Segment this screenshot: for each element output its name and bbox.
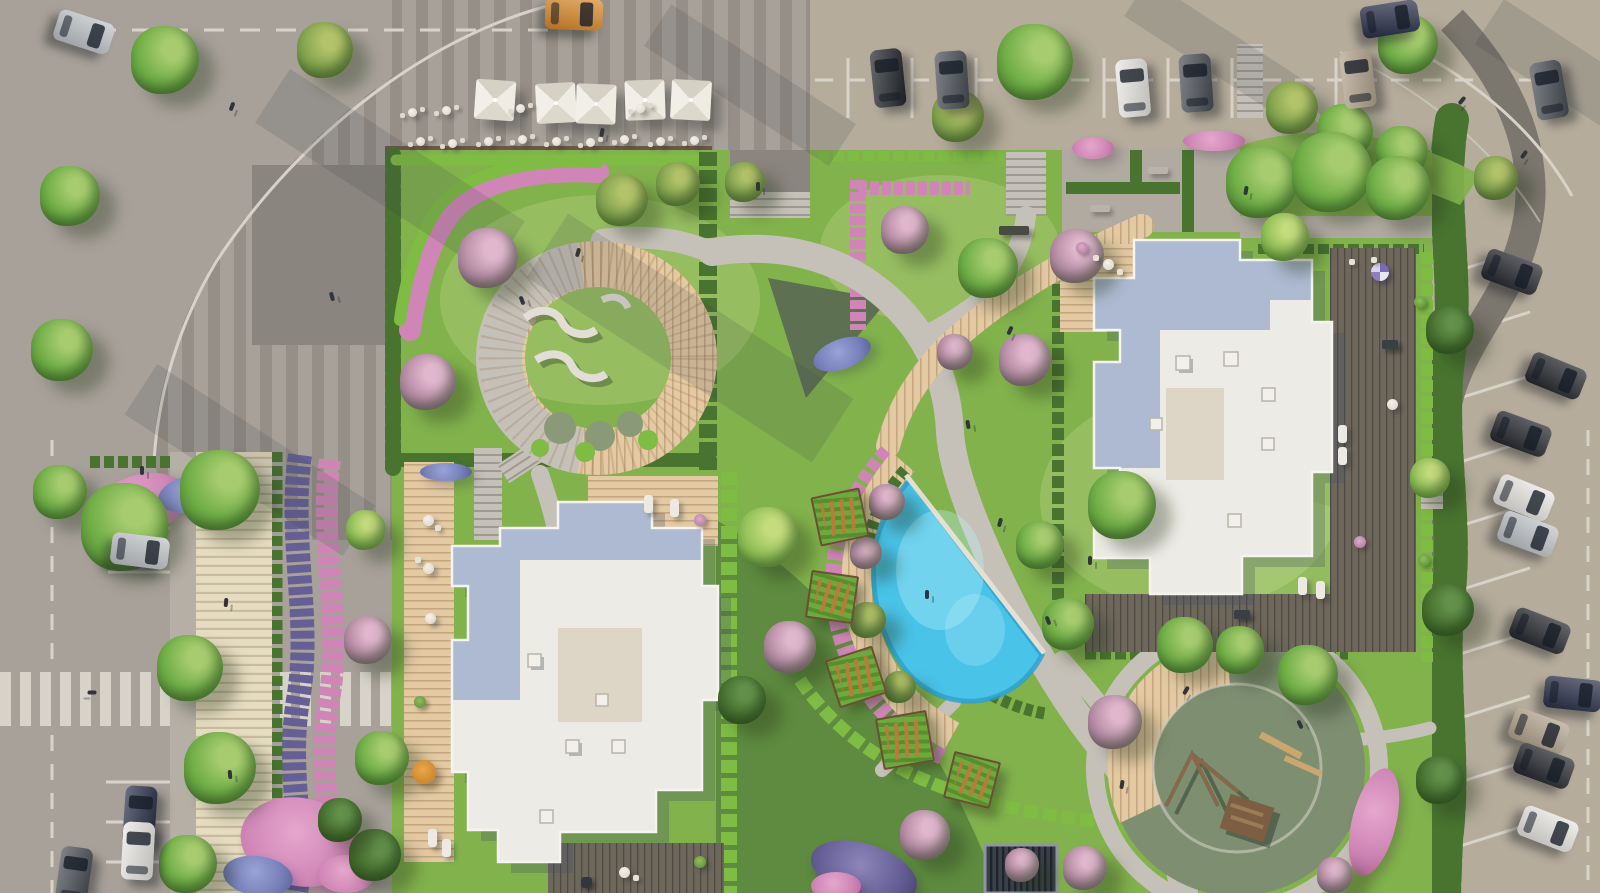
court-hedge-2 [1130, 150, 1142, 184]
bldg-a-south-deck [548, 843, 724, 893]
bike-path-stairs [1421, 463, 1443, 509]
terrain-map [0, 0, 1600, 893]
sidewalk [170, 452, 196, 893]
entry-steps-1 [730, 192, 810, 218]
court-hedge-1 [1066, 182, 1180, 194]
east-hedge-band [1444, 120, 1452, 893]
pergola-walkway [196, 452, 272, 893]
garden-ramp [474, 448, 502, 540]
bldg-b-roof-inset [1166, 388, 1224, 480]
gravel-strip [1240, 216, 1432, 238]
ventilation-grate [985, 845, 1057, 893]
aerial-site-plan [0, 0, 1600, 893]
bldg-a-roof-inset [558, 628, 642, 722]
bldg-a-west-deck [404, 462, 454, 862]
court-hedge-3 [1182, 150, 1194, 232]
